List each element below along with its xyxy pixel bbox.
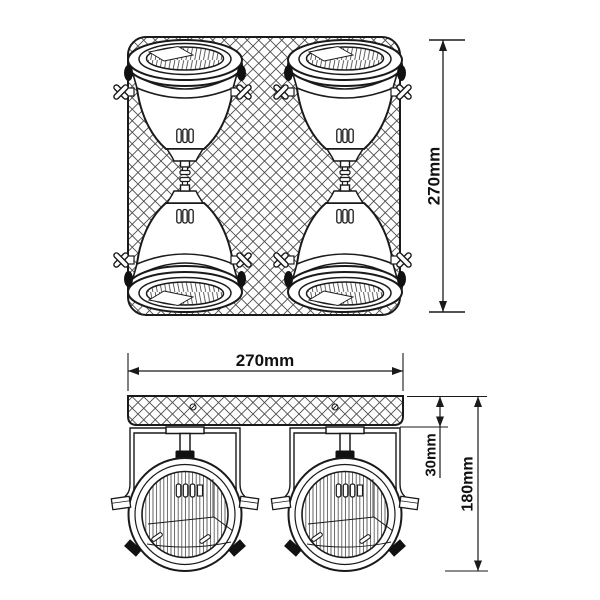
arrowhead-down bbox=[439, 301, 447, 312]
top-view: 270mm bbox=[113, 37, 465, 315]
yoke-bracket-right bbox=[239, 496, 258, 509]
top-view-height-label: 270mm bbox=[425, 147, 444, 206]
dimension-front-height: 180mm bbox=[445, 397, 488, 572]
front-view-height-label: 180mm bbox=[460, 456, 477, 511]
front-view-canopy bbox=[128, 396, 403, 425]
pivot-knob-left bbox=[124, 65, 133, 81]
stem-flange bbox=[166, 427, 204, 434]
front-view: 270mm bbox=[111, 351, 488, 571]
dimension-front-width: 270mm bbox=[128, 351, 403, 391]
arrowhead-down bbox=[474, 561, 482, 572]
stem bbox=[180, 434, 190, 453]
lamp-cap bbox=[167, 149, 203, 161]
drawing-canvas: 270mm 270mm bbox=[0, 0, 600, 600]
mounting-screw-right bbox=[332, 404, 338, 410]
arrowhead-up bbox=[474, 397, 482, 408]
pivot-knob-right bbox=[237, 65, 246, 81]
arrowhead-up bbox=[436, 397, 444, 408]
mounting-screw-left bbox=[190, 404, 196, 410]
front-spotlight-left bbox=[111, 427, 258, 571]
canopy-offset-label: 30mm bbox=[423, 433, 440, 476]
front-spotlight-right bbox=[271, 427, 418, 571]
technical-drawing: 270mm 270mm bbox=[0, 0, 600, 600]
arrowhead-down bbox=[436, 417, 444, 428]
dimension-top-height: 270mm bbox=[425, 40, 466, 312]
arrowhead-up bbox=[439, 40, 447, 51]
vent-slots bbox=[177, 129, 193, 143]
arrowhead-right bbox=[392, 367, 403, 375]
arrowhead-left bbox=[128, 367, 139, 375]
front-view-width-label: 270mm bbox=[236, 351, 295, 370]
yoke-bracket-left bbox=[111, 496, 130, 509]
